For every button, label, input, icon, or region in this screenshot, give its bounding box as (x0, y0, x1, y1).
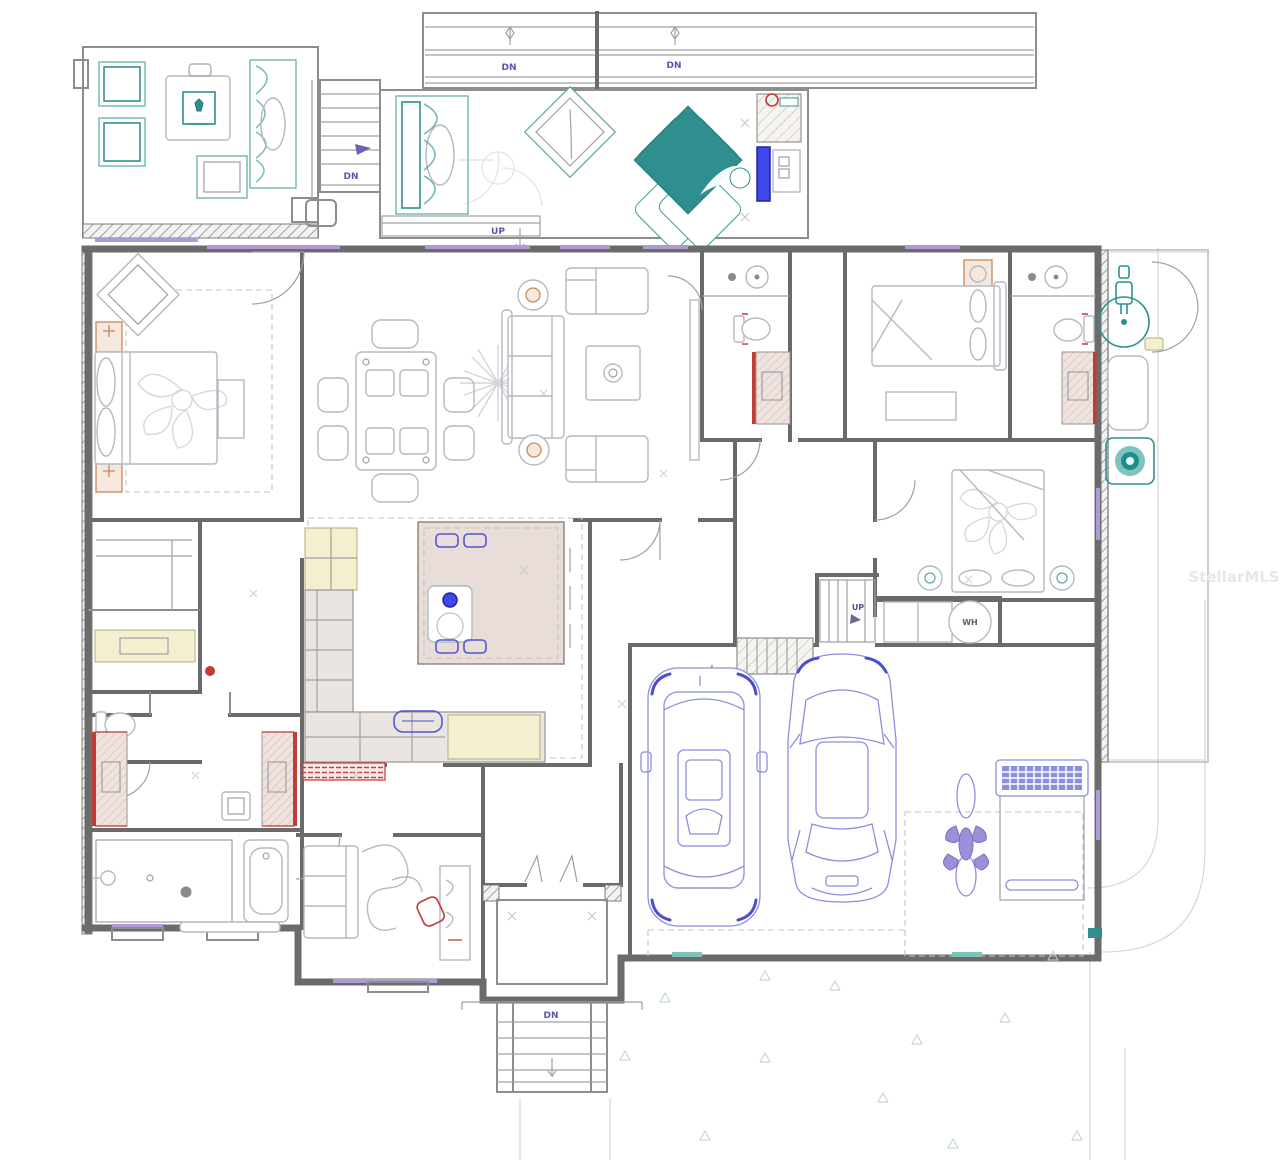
upper-patio (74, 47, 318, 238)
stairs-down-label-left: DN (343, 172, 358, 182)
floor-register (222, 792, 250, 820)
patio-sofa (250, 60, 296, 188)
dining-chair (318, 378, 348, 412)
cabinet-cream (448, 715, 540, 759)
toilet (734, 314, 770, 344)
vanity-right (262, 732, 294, 826)
bathroom-2 (1010, 266, 1097, 424)
floor-plan-page: DN DN DN (0, 0, 1280, 1162)
nightstand (964, 260, 992, 288)
dining-chair (372, 474, 418, 502)
dining-chair (372, 320, 418, 348)
motorcycle (943, 774, 988, 896)
foyer-porch: DN (462, 885, 642, 1092)
closet-mudroom (95, 540, 215, 738)
red-marker (205, 666, 215, 676)
dining-chair (318, 426, 348, 460)
place-setting (366, 428, 394, 454)
master-bedroom (95, 254, 272, 492)
vanity (1062, 352, 1095, 424)
coffee-table (586, 346, 640, 400)
floor-plan-drawing: DN DN DN (0, 0, 1280, 1162)
armchair (566, 268, 648, 314)
driveway-triangles (620, 951, 1082, 1148)
deck-slider-door (757, 147, 770, 201)
upper-boardwalk-stairs: DN DN (423, 13, 1036, 88)
kitchen (303, 518, 582, 780)
tv-console (690, 300, 699, 460)
garage-door-sensor (952, 952, 982, 957)
toilet (1054, 314, 1094, 344)
deck-dining-set (632, 106, 750, 252)
stairs-up-label-deck: UP (491, 227, 505, 237)
kitchen-counter-left (305, 590, 353, 712)
place-setting (366, 370, 394, 396)
office-desk (440, 866, 470, 960)
upper-deck: UP (380, 87, 808, 252)
bathtub (244, 840, 288, 922)
car-suv (641, 668, 767, 926)
deck-counter (773, 150, 800, 192)
dresser (886, 392, 956, 420)
garage-door-sensor (672, 952, 702, 957)
stairs-up-label-interior: UP (852, 603, 864, 612)
front-steps: DN (462, 1002, 642, 1092)
armchair (566, 436, 648, 482)
hose-bib (1088, 928, 1102, 938)
water-heater-label: WH (962, 618, 978, 627)
lounge-chair-sketch (362, 845, 422, 930)
dining-chair (444, 426, 474, 460)
interior-stairs: UP (820, 580, 875, 642)
office-den (304, 845, 470, 960)
stairs-down-label-porch: DN (543, 1011, 558, 1021)
shower-drain (181, 887, 192, 898)
walk-in-shower (93, 840, 232, 922)
living-room (460, 268, 699, 482)
bath-window-seat (180, 922, 280, 932)
table-lamp (526, 288, 540, 302)
vanity-left (95, 732, 127, 826)
kitchen-island (418, 522, 570, 664)
red-buffet-cabinet (303, 763, 385, 780)
vanity (756, 352, 790, 424)
bedroom-2 (872, 260, 1006, 420)
mudroom-bench (95, 630, 195, 662)
table-lamp (527, 443, 541, 457)
deck-lounge-chair (525, 87, 616, 178)
patio-chair (99, 62, 145, 106)
living-sofa (508, 316, 564, 438)
place-setting (400, 428, 428, 454)
right-courtyard (1099, 250, 1208, 762)
laundry-utility: WH (884, 601, 991, 643)
place-setting (400, 370, 428, 396)
stairs-down-label-boardwalk-left: DN (501, 63, 516, 73)
garage (641, 638, 1102, 958)
bed-bench (218, 380, 244, 438)
island-faucet (443, 593, 457, 607)
office-sofa (304, 846, 358, 938)
bed (872, 286, 1000, 366)
mls-watermark: StellarMLS (1188, 568, 1279, 586)
car-sedan (788, 654, 896, 902)
courtyard-bench (1108, 356, 1148, 430)
workbench (996, 760, 1088, 900)
dining-room (318, 320, 474, 502)
spa-jet (1106, 438, 1154, 484)
bedroom-3 (918, 470, 1074, 592)
patio-chair (99, 118, 145, 166)
hall-bathroom (702, 266, 790, 424)
stairs-down-label-boardwalk-right: DN (666, 61, 681, 71)
